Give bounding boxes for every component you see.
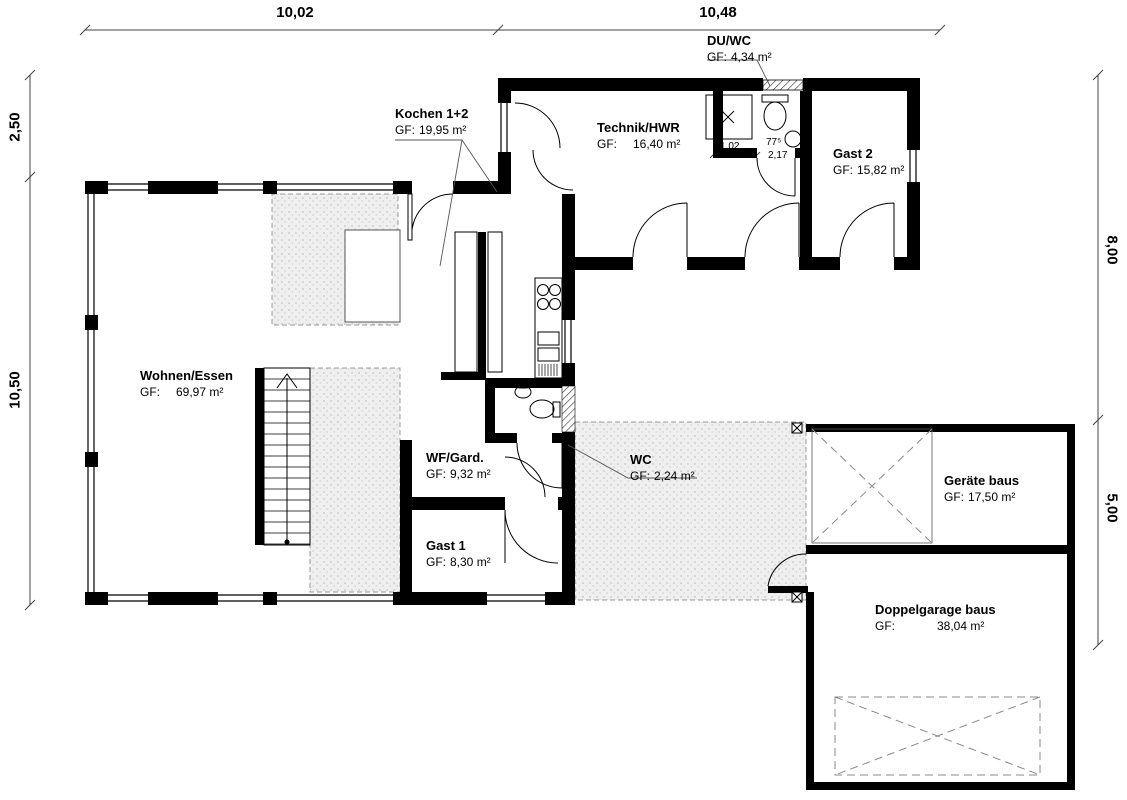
room-name: WC [630, 452, 695, 469]
room-name: DU/WC [707, 33, 772, 50]
room-name: Doppelgarage baus [875, 602, 996, 619]
dim-left-lower: 10,50 [7, 371, 24, 409]
kitchen-island-table [345, 230, 400, 322]
kitchen-sink [538, 348, 559, 361]
living-door-leaf [408, 194, 412, 240]
dim-right-upper: 8,00 [1104, 235, 1121, 264]
living-door-arc [412, 194, 453, 240]
room-name: Geräte baus [944, 473, 1019, 490]
kitchen-counter [535, 278, 562, 378]
room-label-kochen: Kochen 1+2 GF:19,95 m² [395, 106, 468, 138]
room-name: Gast 1 [426, 538, 491, 555]
floor-plan-canvas: 10,02 10,48 2,50 10,50 8,00 5,00 1,02 77… [0, 0, 1127, 800]
room-label-geraetehaus: Geräte baus GF:17,50 m² [944, 473, 1019, 505]
room-name: Technik/HWR [597, 120, 680, 137]
floor-plan-drawing [0, 0, 1127, 800]
dim-top-right: 10,48 [699, 4, 737, 21]
room-label-technik-hwr: Technik/HWR GF:16,40 m² [597, 120, 680, 152]
room-label-doppelgarage: Doppelgarage baus GF:38,04 m² [875, 602, 996, 634]
room-label-gast-1: Gast 1 GF:8,30 m² [426, 538, 491, 570]
duwc-door-arc [757, 158, 795, 196]
kitchen-sink [538, 332, 559, 345]
stove-burner [550, 299, 561, 310]
room-name: WF/Gard. [426, 450, 491, 467]
room-label-gast-2: Gast 2 GF:15,82 m² [833, 146, 904, 178]
basin [785, 131, 801, 147]
room-label-du-wc: DU/WC GF:4,34 m² [707, 33, 772, 65]
vestibule-door-arc [745, 203, 799, 257]
room-label-wc: WC GF:2,24 m² [630, 452, 695, 484]
entry-door-arc [515, 103, 560, 148]
wf-door-arc [505, 457, 545, 497]
wc-installation-wall [562, 386, 575, 432]
dim-duwc-width: 1,02 [720, 141, 739, 152]
shower-drain [722, 111, 734, 123]
stove-burner [550, 285, 561, 296]
dim-duwc-door: 2,17 [768, 150, 787, 161]
stove-burner [538, 285, 549, 296]
gast1-door-arc [505, 510, 558, 563]
room-name: Kochen 1+2 [395, 106, 468, 123]
technik-door-arc [633, 203, 687, 257]
shower [706, 95, 752, 139]
room-name: Gast 2 [833, 146, 904, 163]
stipple-areas [272, 194, 806, 600]
wc-door-arc [517, 443, 562, 488]
room-label-wohnen-essen: Wohnen/Essen GF:69,97 m² [140, 368, 233, 400]
island-cabinet [488, 232, 502, 372]
hall-door-arc [533, 150, 573, 190]
room-name: Wohnen/Essen [140, 368, 233, 385]
dim-top-left: 10,02 [276, 4, 314, 21]
dim-right-lower: 5,00 [1104, 493, 1121, 522]
staircase [264, 368, 310, 545]
gast2-door-arc [840, 203, 894, 257]
dishwasher [539, 364, 557, 376]
island-cabinet [455, 232, 477, 372]
toilet-tank [762, 95, 788, 102]
stove-burner [538, 299, 549, 310]
wc-toilet-bowl [530, 400, 554, 418]
toilet-bowl [764, 102, 786, 130]
dim-left-upper: 2,50 [7, 112, 24, 141]
dim-duwc-angle: 77⁵ [766, 137, 781, 148]
room-label-wf-gard: WF/Gard. GF:9,32 m² [426, 450, 491, 482]
